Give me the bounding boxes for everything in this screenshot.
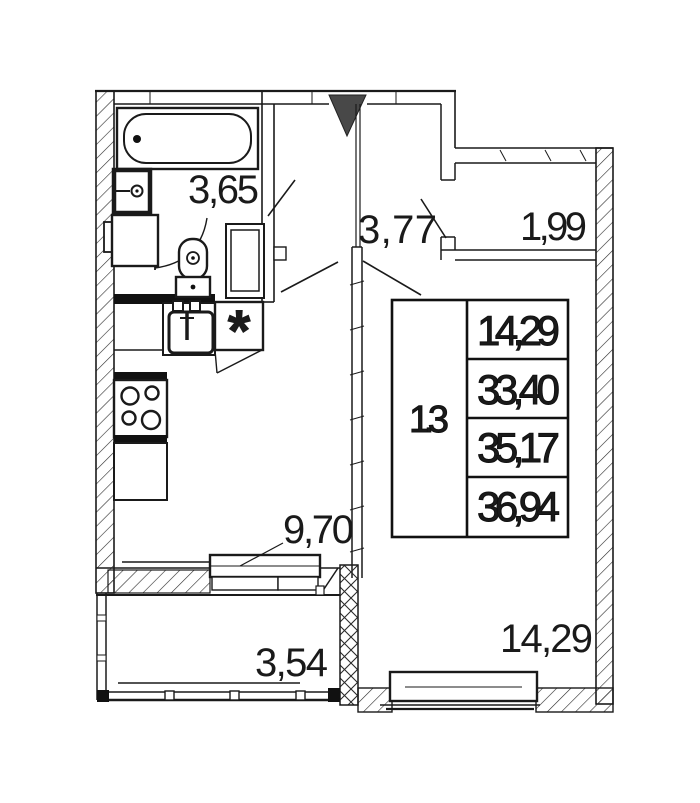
table-value-living: 14,29 [477, 307, 559, 354]
room-opening-mark [363, 261, 421, 295]
balcony-area-label: 3,54 [255, 641, 328, 685]
top-wall [95, 91, 456, 104]
kitchen-counter [114, 443, 167, 500]
top-right-step-wall [455, 91, 613, 163]
floor-plan-drawing: * 1.3 14,29 33,40 35,17 36,94 3,65 3,77 … [0, 0, 700, 803]
kitchen-opening-mark [281, 262, 338, 292]
kitchen-fixtures: * [114, 299, 263, 500]
stove [114, 372, 167, 443]
unit-type-label: 1.3 [409, 399, 449, 441]
floor-plan: * 1.3 14,29 33,40 35,17 36,94 3,65 3,77 … [0, 0, 700, 803]
washing-machine [226, 224, 264, 298]
wardrobe-south-wall [441, 250, 596, 260]
kitchen-area-label: 9,70 [283, 508, 353, 552]
bathroom-area-label: 3,65 [188, 168, 258, 212]
table-value-total-balcony: 36,94 [477, 483, 560, 530]
bathroom-cabinet [104, 215, 158, 266]
table-value-total: 35,17 [477, 424, 559, 471]
bathroom-sink [114, 170, 150, 213]
toilet [176, 239, 210, 297]
living-room-area-label: 14,29 [500, 617, 592, 661]
appliance-slot: * [215, 299, 263, 373]
wardrobe-west-wall [441, 104, 455, 260]
balcony-east-wall [340, 565, 358, 705]
living-room-window [380, 672, 540, 709]
wall-duct [274, 247, 286, 260]
kitchen-sink [163, 301, 215, 355]
hallway-area-label: 3,77 [358, 208, 436, 252]
table-value-area: 33,40 [477, 366, 559, 413]
right-wall [596, 148, 613, 704]
left-wall [96, 91, 114, 593]
bathtub [117, 108, 258, 169]
wardrobe-area-label: 1,99 [520, 205, 586, 249]
bathroom-door-leaf [268, 180, 295, 216]
kitchen-window [210, 555, 320, 590]
washer-marker: * [228, 299, 251, 364]
area-table: 1.3 14,29 33,40 35,17 36,94 [392, 300, 568, 537]
bathtub-drain [133, 135, 141, 143]
